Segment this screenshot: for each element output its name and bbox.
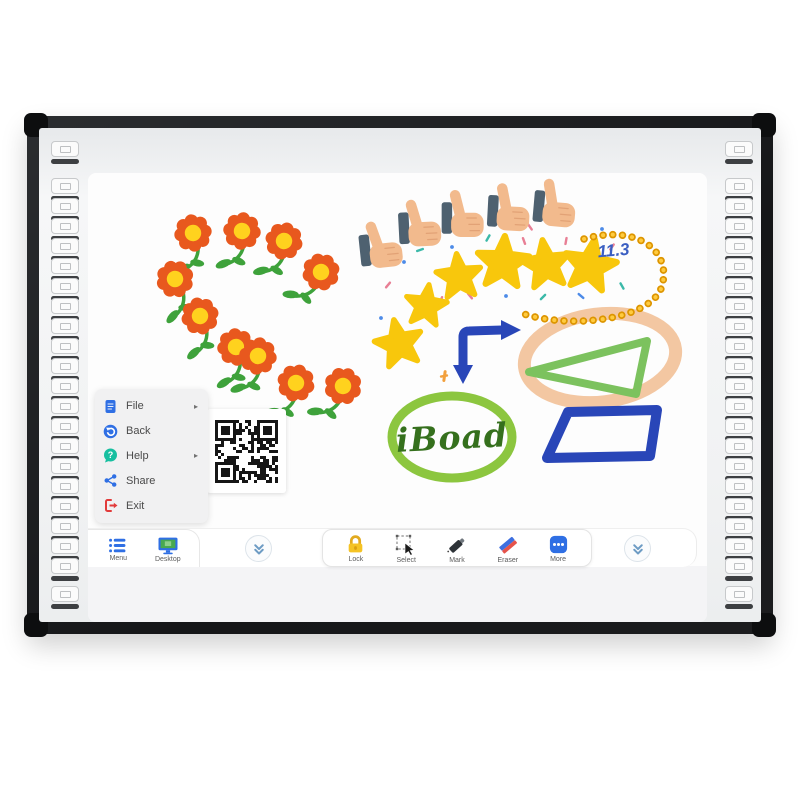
more-icon [548, 534, 569, 555]
collapse-toolbar-button[interactable] [245, 535, 272, 562]
qr-card [207, 409, 286, 493]
menu-item-help[interactable]: ? Help ▸ [103, 444, 200, 469]
thumbs-up-icon [487, 181, 531, 231]
menu-item-label: Share [126, 475, 200, 487]
svg-text:?: ? [108, 451, 114, 461]
double-chevron-down-icon [629, 540, 647, 558]
hotkey-icon [725, 558, 753, 574]
context-menu: File ▸ Back ? Help ▸ [95, 389, 208, 523]
tool-label: Eraser [497, 557, 518, 564]
green-triangle-drawing [529, 341, 647, 394]
marker-icon [446, 534, 468, 556]
hotkey-label-bar [51, 604, 79, 609]
hotkey-label-bar [725, 576, 753, 581]
tool-label: More [550, 556, 566, 563]
hotkey-icon [51, 298, 79, 314]
hotkey-icon [51, 558, 79, 574]
arrow-head-down [453, 365, 473, 384]
thumbs-up-icon [442, 189, 484, 237]
elbow-arrow-drawing [463, 330, 502, 367]
confetti-dot [504, 294, 508, 298]
taskbar-item-label: Menu [110, 555, 128, 562]
menu-item-back[interactable]: Back [103, 419, 200, 444]
hotkey-icon [725, 238, 753, 254]
hotkey-icon [51, 478, 79, 494]
hotkey-icon [725, 298, 753, 314]
confetti-dash [521, 237, 526, 246]
hotkey-icon [51, 418, 79, 434]
hotkey-icon [725, 398, 753, 414]
menu-item-exit[interactable]: Exit [103, 493, 200, 518]
hotkey-icon [725, 358, 753, 374]
hotkey-icon [51, 438, 79, 454]
tool-select[interactable]: Select [395, 534, 417, 564]
lock-icon [345, 534, 366, 555]
tool-mark[interactable]: Mark [446, 534, 468, 564]
confetti-dash [539, 293, 547, 301]
hotkey-icon [725, 141, 753, 157]
confetti-dot [402, 260, 406, 264]
hotkey-icon [51, 498, 79, 514]
qr-code [215, 420, 278, 483]
collapse-toolbar-button[interactable] [624, 535, 651, 562]
thumbs-up-icon [357, 218, 404, 270]
stars-group [371, 234, 620, 368]
hotkey-icon [51, 178, 79, 194]
taskbar: Menu Desktop [88, 529, 200, 567]
select-icon [395, 534, 417, 556]
file-icon [103, 399, 118, 414]
star-icon [434, 251, 483, 298]
tool-eraser[interactable]: Eraser [497, 534, 519, 564]
tool-label: Select [396, 557, 415, 564]
board-handwriting-text: iBoad [395, 415, 509, 460]
hotkey-icon [725, 178, 753, 194]
taskbar-item-desktop[interactable]: Desktop [155, 536, 181, 563]
flower-icon [304, 359, 368, 432]
confetti-dot [379, 316, 383, 320]
hotkey-label-bar [725, 604, 753, 609]
hotkey-icon [725, 498, 753, 514]
hotkey-icon [51, 518, 79, 534]
thumbs-up-icon [397, 197, 441, 247]
hotkey-icon [51, 538, 79, 554]
hotkey-label-bar [51, 576, 79, 581]
submenu-arrow-icon: ▸ [194, 451, 200, 460]
share-icon [103, 473, 118, 488]
hotkey-icon [51, 238, 79, 254]
hotkey-icon [51, 398, 79, 414]
hotkey-icon [725, 278, 753, 294]
tool-more[interactable]: More [548, 534, 569, 563]
confetti-dash [485, 234, 491, 242]
hotkey-button[interactable] [50, 141, 80, 164]
arrow-head-right [501, 320, 521, 340]
star-icon [371, 315, 426, 368]
hotkey-icon [51, 338, 79, 354]
hotkey-icon [51, 218, 79, 234]
hotkey-button[interactable] [50, 586, 80, 609]
flower-icon [214, 210, 263, 275]
hotkey-button[interactable] [724, 558, 754, 581]
hotkey-icon [725, 458, 753, 474]
confetti-dash [416, 247, 425, 252]
hotkey-button[interactable] [724, 141, 754, 164]
star-icon [403, 282, 449, 326]
hotkey-icon [51, 198, 79, 214]
hotkey-icon [725, 218, 753, 234]
menu-list-icon [106, 537, 130, 554]
hotkey-icon [725, 338, 753, 354]
tool-lock[interactable]: Lock [345, 534, 366, 563]
menu-item-label: Back [126, 425, 200, 437]
confetti-dot [450, 245, 454, 249]
bottom-dock: Menu Desktop [88, 528, 697, 567]
hotkey-icon [725, 318, 753, 334]
hotkey-icon [51, 278, 79, 294]
hotkey-icon [51, 586, 79, 602]
blue-parallelogram-drawing [547, 410, 657, 458]
tool-label: Mark [449, 557, 465, 564]
hotkey-icon [725, 258, 753, 274]
taskbar-item-menu[interactable]: Menu [106, 537, 130, 562]
hotkey-icon [51, 458, 79, 474]
hotkey-icon [725, 478, 753, 494]
drawing-toolbar: Lock Select [322, 529, 592, 567]
exit-icon [103, 498, 118, 513]
product-photo: iBoad 11.3 File ▸ Back [0, 0, 800, 800]
desktop-monitor-icon [157, 536, 179, 555]
hotkey-button[interactable] [724, 586, 754, 609]
double-chevron-down-icon [250, 540, 268, 558]
hotkey-label-bar [725, 159, 753, 164]
thumbs-up-icon [532, 177, 578, 229]
hotkey-icon [51, 318, 79, 334]
confetti-dot [600, 227, 604, 231]
back-icon [103, 424, 118, 439]
hotkey-button[interactable] [50, 558, 80, 581]
menu-item-share[interactable]: Share [103, 468, 200, 493]
menu-item-label: File [126, 400, 186, 412]
hotkey-icon [725, 518, 753, 534]
menu-item-label: Exit [126, 500, 200, 512]
hotkey-icon [51, 378, 79, 394]
hotkey-icon [725, 198, 753, 214]
confetti-dash [384, 281, 391, 289]
hotkey-icon [725, 438, 753, 454]
eraser-icon [497, 534, 519, 556]
hotkey-icon [51, 258, 79, 274]
hotkey-icon [725, 418, 753, 434]
hotkey-icon [725, 538, 753, 554]
hotkey-icon [51, 358, 79, 374]
confetti-dash [564, 237, 568, 246]
hotkey-icon [725, 586, 753, 602]
help-icon: ? [103, 448, 118, 463]
confetti-dash [619, 282, 625, 290]
taskbar-item-label: Desktop [155, 556, 181, 563]
tool-label: Lock [348, 556, 363, 563]
number-annotation: 11.3 [597, 240, 631, 262]
hotkey-icon [51, 141, 79, 157]
menu-item-label: Help [126, 450, 186, 462]
flower-icon [251, 217, 307, 286]
submenu-arrow-icon: ▸ [194, 402, 200, 411]
hotkey-icon [725, 378, 753, 394]
confetti-dash [577, 292, 585, 299]
menu-item-file[interactable]: File ▸ [103, 394, 200, 419]
hotkey-label-bar [51, 159, 79, 164]
